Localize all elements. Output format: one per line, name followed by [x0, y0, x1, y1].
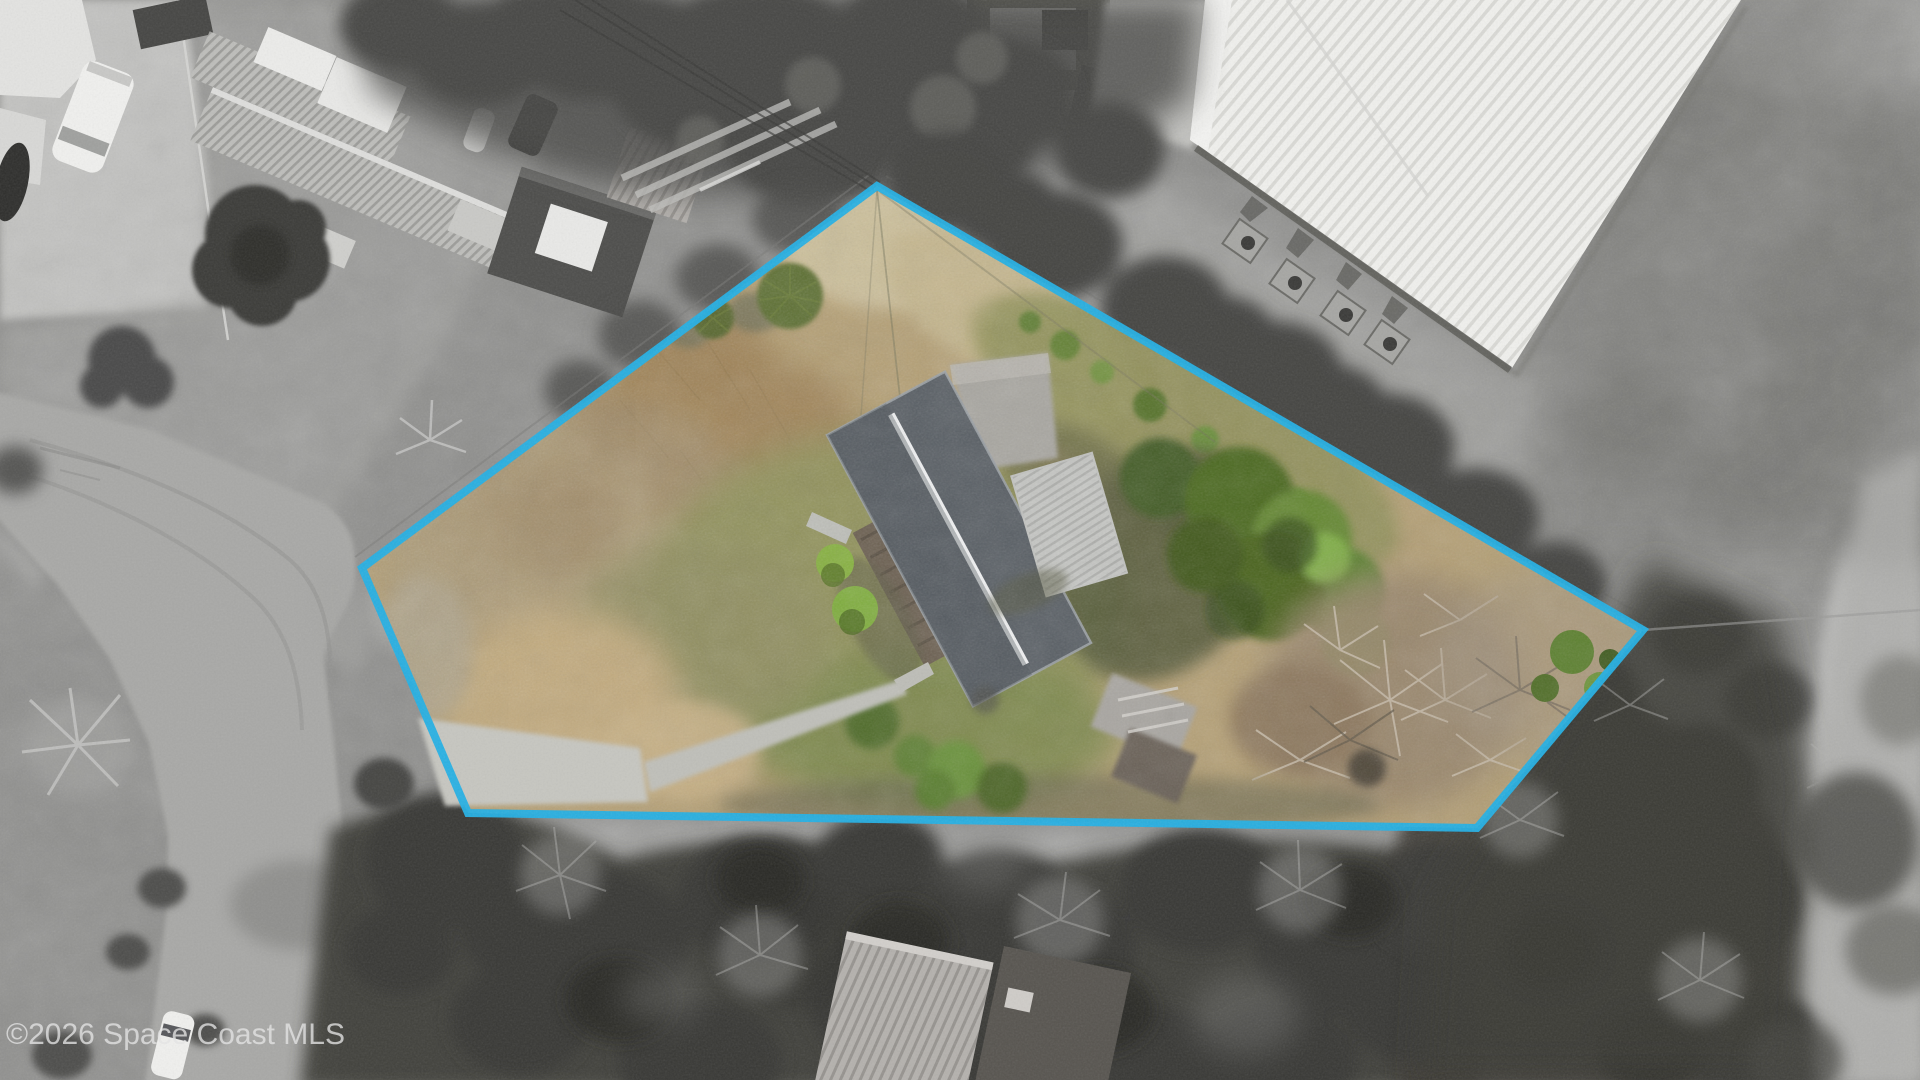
svg-text:©2026 Space Coast MLS: ©2026 Space Coast MLS: [6, 1018, 345, 1051]
